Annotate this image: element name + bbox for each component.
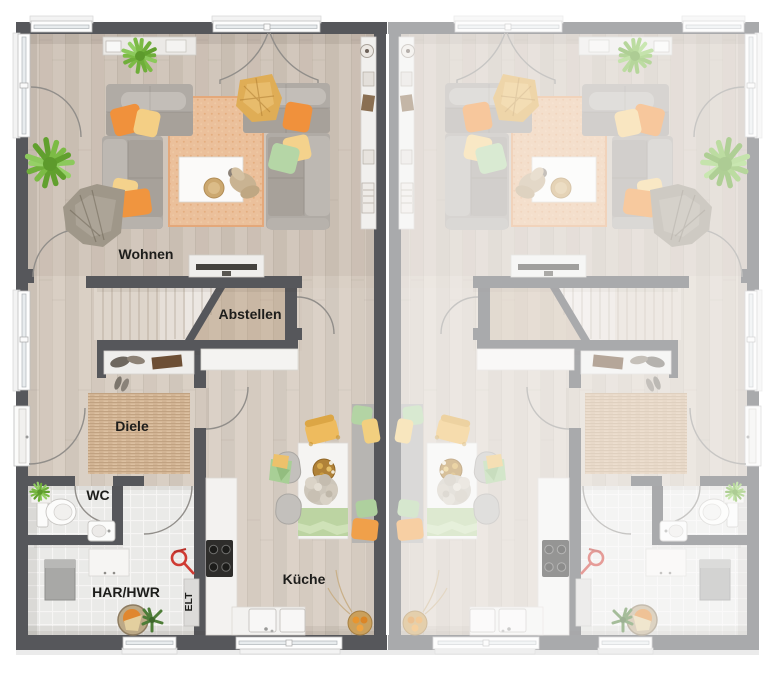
svg-text:Küche: Küche	[283, 571, 326, 587]
svg-text:HAR/HWR: HAR/HWR	[92, 584, 160, 600]
svg-text:WC: WC	[86, 487, 109, 503]
svg-text:ELT: ELT	[183, 592, 195, 612]
svg-text:Wohnen: Wohnen	[119, 246, 174, 262]
svg-text:Abstellen: Abstellen	[218, 306, 281, 322]
svg-text:Diele: Diele	[115, 418, 149, 434]
